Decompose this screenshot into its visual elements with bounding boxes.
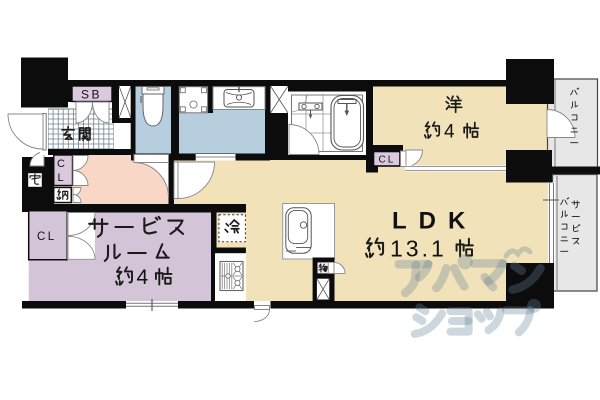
svg-text:4: 4 [444,122,455,143]
svg-text:CL: CL [379,155,396,166]
svg-text:13.1: 13.1 [390,236,447,262]
svg-text:SB: SB [81,88,102,102]
svg-text:C: C [57,158,65,170]
svg-text:CL: CL [37,231,57,243]
svg-text:4: 4 [137,266,149,289]
svg-text:LDK: LDK [392,208,477,235]
svg-text:L: L [58,172,64,184]
